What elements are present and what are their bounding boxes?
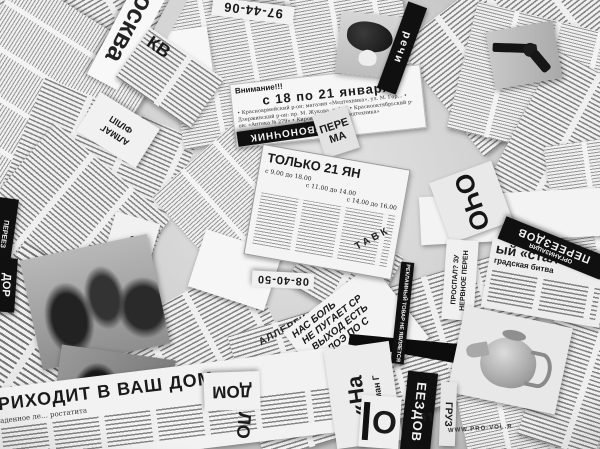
phone-mid-text: 08-40-50 <box>257 273 310 288</box>
gruz-clipping: ГРУЗ <box>439 382 457 447</box>
phone-mid-scrap: 08-40-50 <box>252 270 315 289</box>
big-o-text: О <box>371 405 398 439</box>
big-o-clipping: О <box>358 395 402 449</box>
gun-grip <box>529 49 552 74</box>
lo-text: ЛО <box>233 411 254 439</box>
dom-clipping: ДОМ <box>203 371 260 411</box>
ocho-text: ОЧО <box>446 169 495 235</box>
black-bar <box>362 402 371 440</box>
dark-object <box>345 20 394 55</box>
pereez-banner-text: ПЕРЕЕЗ <box>0 220 9 249</box>
dom-text: ДОМ <box>212 380 252 401</box>
gruz-text: ГРУЗ <box>442 401 454 426</box>
newspaper-collage: осква КВ АЛМАГ ФІЛІП 97-44-06 Внимание!!… <box>0 0 600 449</box>
nervnoe-text: НЕРВНОЕ ПЕРЕН <box>459 250 470 311</box>
dor-text: ДОР <box>0 273 13 298</box>
revolver-photo <box>485 21 562 90</box>
